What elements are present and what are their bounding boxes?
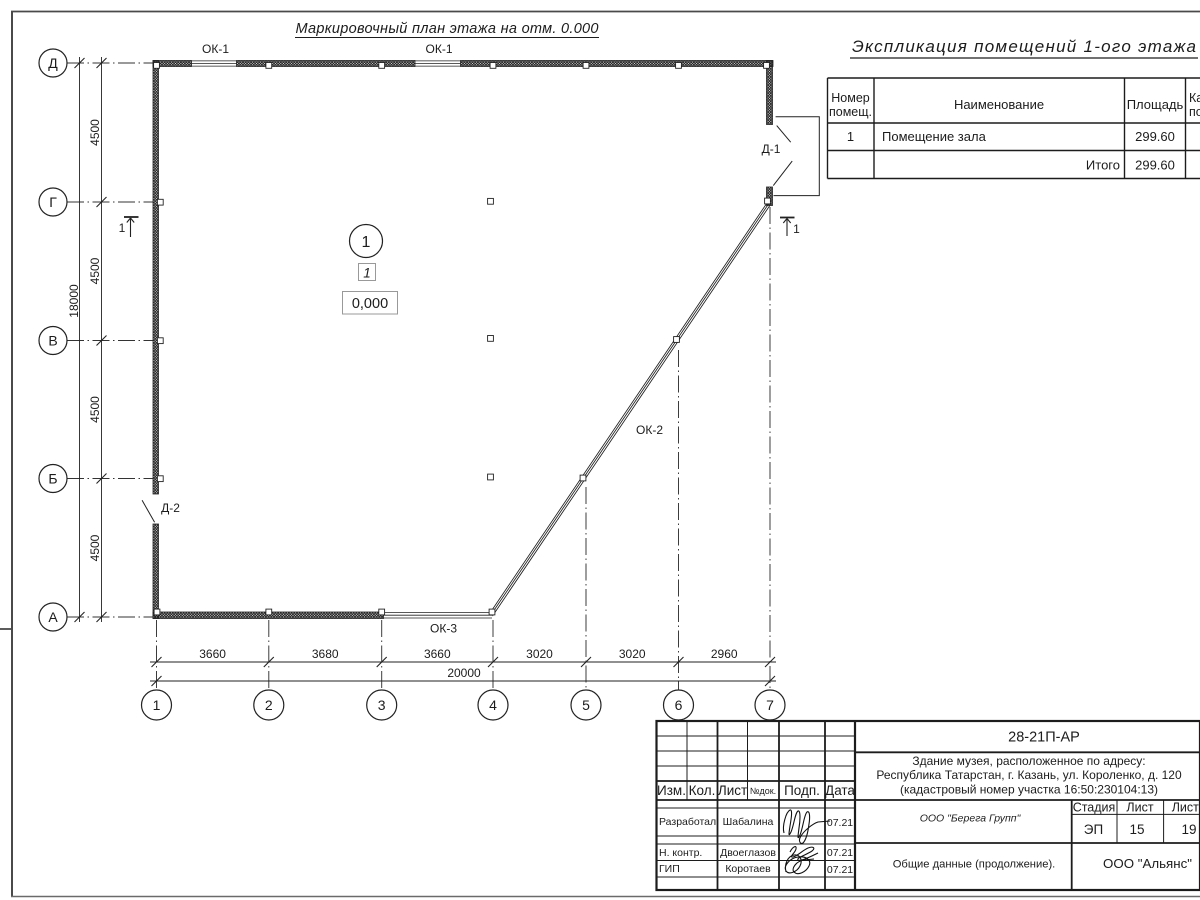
svg-text:1: 1 bbox=[362, 234, 371, 251]
svg-text:3680: 3680 bbox=[312, 647, 339, 661]
svg-text:Лист: Лист bbox=[718, 783, 747, 798]
svg-text:ОК-2: ОК-2 bbox=[636, 423, 663, 437]
svg-text:Здание музея, расположенное по: Здание музея, расположенное по адресу: bbox=[912, 754, 1145, 768]
svg-text:Площадь: Площадь bbox=[1127, 97, 1184, 112]
svg-text:№док.: №док. bbox=[750, 786, 776, 796]
svg-text:18000: 18000 bbox=[67, 284, 81, 318]
svg-text:Листов: Листов bbox=[1172, 801, 1200, 815]
svg-text:Наименование: Наименование bbox=[954, 97, 1044, 112]
svg-text:28-21П-АР: 28-21П-АР bbox=[1008, 730, 1080, 746]
svg-text:ОК-1: ОК-1 bbox=[202, 42, 229, 56]
svg-text:Изм.: Изм. bbox=[657, 783, 686, 798]
svg-text:Маркировочный план этажа на от: Маркировочный план этажа на отм. 0.000 bbox=[296, 21, 599, 37]
svg-text:299.60: 299.60 bbox=[1135, 129, 1175, 144]
svg-text:0,000: 0,000 bbox=[352, 296, 388, 312]
svg-text:7: 7 bbox=[766, 697, 774, 713]
svg-text:Дата: Дата bbox=[825, 783, 855, 798]
svg-text:5: 5 bbox=[582, 697, 590, 713]
svg-text:(кадастровый номер участка 16:: (кадастровый номер участка 16:50:230104:… bbox=[900, 783, 1158, 797]
svg-text:07.21: 07.21 bbox=[827, 817, 853, 829]
svg-text:2960: 2960 bbox=[711, 647, 738, 661]
svg-text:В: В bbox=[48, 333, 57, 349]
svg-text:Стадия: Стадия bbox=[1073, 801, 1116, 815]
svg-text:1: 1 bbox=[793, 222, 800, 236]
svg-text:Общие данные (продолжение).: Общие данные (продолжение). bbox=[893, 859, 1056, 871]
svg-text:07.21: 07.21 bbox=[827, 864, 853, 876]
svg-text:4500: 4500 bbox=[88, 119, 102, 146]
svg-text:Подп.: Подп. bbox=[784, 783, 820, 798]
svg-text:4500: 4500 bbox=[88, 534, 102, 561]
svg-text:4500: 4500 bbox=[88, 257, 102, 284]
svg-text:3020: 3020 bbox=[619, 647, 646, 661]
svg-text:1: 1 bbox=[363, 266, 371, 281]
svg-text:4: 4 bbox=[489, 697, 497, 713]
svg-text:20000: 20000 bbox=[447, 666, 481, 680]
svg-text:Кол.: Кол. bbox=[689, 783, 716, 798]
svg-text:1: 1 bbox=[847, 129, 854, 144]
svg-text:ГИП: ГИП bbox=[659, 863, 680, 875]
svg-text:Экспликация помещений 1-ого эт: Экспликация помещений 1-ого этажа bbox=[852, 37, 1196, 56]
svg-text:Н. контр.: Н. контр. bbox=[659, 847, 702, 859]
svg-text:3020: 3020 bbox=[526, 647, 553, 661]
svg-text:Б: Б bbox=[48, 471, 57, 487]
svg-text:Д: Д bbox=[48, 55, 58, 71]
svg-text:19: 19 bbox=[1181, 822, 1196, 837]
svg-text:Коротаев: Коротаев bbox=[725, 863, 771, 875]
svg-text:1: 1 bbox=[119, 221, 126, 235]
svg-text:А: А bbox=[48, 609, 58, 625]
svg-text:Ка: Ка bbox=[1189, 91, 1200, 105]
svg-text:Разработал: Разработал bbox=[659, 816, 716, 828]
svg-text:Помещение зала: Помещение зала bbox=[882, 129, 987, 144]
svg-text:по: по bbox=[1189, 105, 1200, 119]
svg-text:Шабалина: Шабалина bbox=[723, 816, 774, 828]
svg-text:6: 6 bbox=[675, 697, 683, 713]
svg-text:3660: 3660 bbox=[199, 647, 226, 661]
svg-text:07.21: 07.21 bbox=[827, 847, 853, 859]
svg-text:Д-1: Д-1 bbox=[762, 142, 781, 156]
svg-text:Двоеглазов: Двоеглазов bbox=[720, 847, 776, 859]
svg-text:помещ.: помещ. bbox=[829, 105, 872, 119]
svg-text:3660: 3660 bbox=[424, 647, 451, 661]
svg-text:ООО "Альянс": ООО "Альянс" bbox=[1103, 856, 1192, 871]
svg-text:Д-2: Д-2 bbox=[161, 501, 180, 515]
svg-text:299.60: 299.60 bbox=[1135, 158, 1175, 173]
svg-text:Г: Г bbox=[49, 194, 57, 210]
svg-text:Республика Татарстан, г. Казан: Республика Татарстан, г. Казань, ул. Кор… bbox=[876, 768, 1182, 782]
svg-text:ОК-1: ОК-1 bbox=[426, 42, 453, 56]
svg-text:4500: 4500 bbox=[88, 396, 102, 423]
svg-text:1: 1 bbox=[153, 697, 161, 713]
svg-text:ООО "Берега Групп": ООО "Берега Групп" bbox=[920, 813, 1022, 825]
svg-text:Номер: Номер bbox=[831, 91, 870, 105]
svg-text:Лист: Лист bbox=[1126, 801, 1153, 815]
svg-text:ЭП: ЭП bbox=[1084, 822, 1103, 837]
svg-text:Итого: Итого bbox=[1086, 158, 1120, 173]
svg-text:3: 3 bbox=[378, 697, 386, 713]
svg-text:2: 2 bbox=[265, 697, 273, 713]
svg-text:15: 15 bbox=[1129, 822, 1144, 837]
svg-text:ОК-3: ОК-3 bbox=[430, 622, 457, 636]
